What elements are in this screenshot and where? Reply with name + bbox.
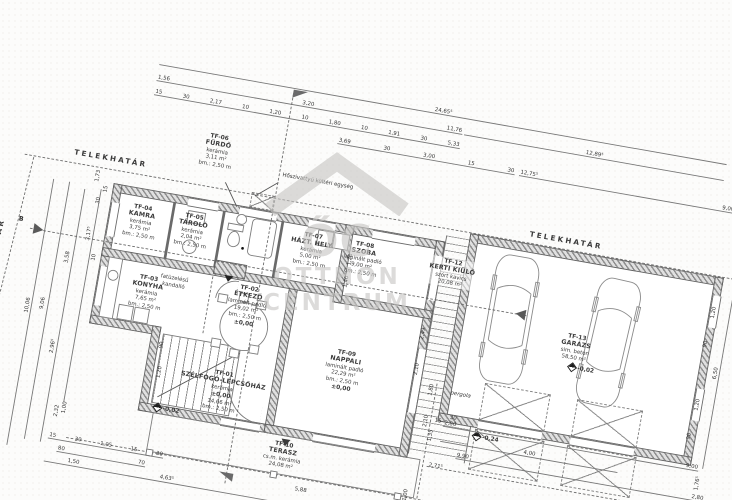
dim-value: 30 [181,94,190,101]
dim-value: 15 [103,185,110,193]
section-label-b: B [18,215,24,223]
boundary-label-top: TELEKHATÁR [74,148,148,169]
dim-value: 2,80 [690,494,705,500]
dim-value: 30 [382,146,391,153]
dim-value: 30 [506,167,515,174]
dim-value: 3,00 [422,153,437,161]
dim-value: 10 [91,253,98,261]
dim-value: 12,89⁵ [584,150,604,159]
dim-value: 1,91 [387,130,402,138]
dim-value: 3,58 [64,251,71,264]
chair [248,344,259,355]
dim-value: 90 [686,433,693,441]
dim-value: 3,69 [337,138,352,146]
dim-value: 12,75⁵ [519,170,539,179]
section-arrow-b-right [515,308,527,320]
dim-value: 2,17 [208,99,223,107]
dim-value: 24,65⁵ [433,107,453,116]
heat-pump-label: Hőszivattyú kültéri egység [282,172,354,191]
dim-value: 2,71⁵ [428,463,443,471]
dim-value: 1,56 [157,75,172,83]
dim-value: 30 [449,415,457,422]
dim-value: 5,88 [294,487,307,494]
dim-value: 1,20 [268,109,283,117]
dim-value: 10 [241,104,250,111]
dim-value: 9,00 [685,463,700,471]
dim-value: 1,00 [61,401,68,414]
floorplan-sheet: TELEKHATÁR TELEKHATÁR TELEKHATÁR 24,65⁵ … [0,0,732,500]
fence-post [269,470,277,478]
dim-value: 15 [434,418,442,425]
chair [228,348,239,359]
dim-value: 30 [419,136,428,143]
dim-value: 10 [300,115,309,122]
dim-value: 30 [95,197,102,205]
dim-value: 3,20 [301,100,316,108]
dim-value: 9,00 [721,205,732,213]
section-flag-a-top [292,90,308,100]
dim-value: 11,76 [445,126,463,134]
section-arrow-b-left [33,223,45,235]
dim-value: 15 [466,161,475,168]
dim-value: 15 [154,89,163,96]
dim-value: 5,33 [446,140,461,148]
chair [210,337,221,348]
section-flag-a-bottom [218,471,234,481]
dim-value: 9,90 [455,453,470,461]
room-label-furdo: TF-06 FÜRDŐ kerámia 3,11 m² bm.: 2,50 m [188,129,247,173]
dim-value: 1,73 [95,169,102,182]
dim-value: 1,80 [327,120,342,128]
dim-value: 9,06 [39,297,46,310]
dim-value: 10 [360,125,369,132]
dim-value: 1,76⁵ [694,476,702,491]
